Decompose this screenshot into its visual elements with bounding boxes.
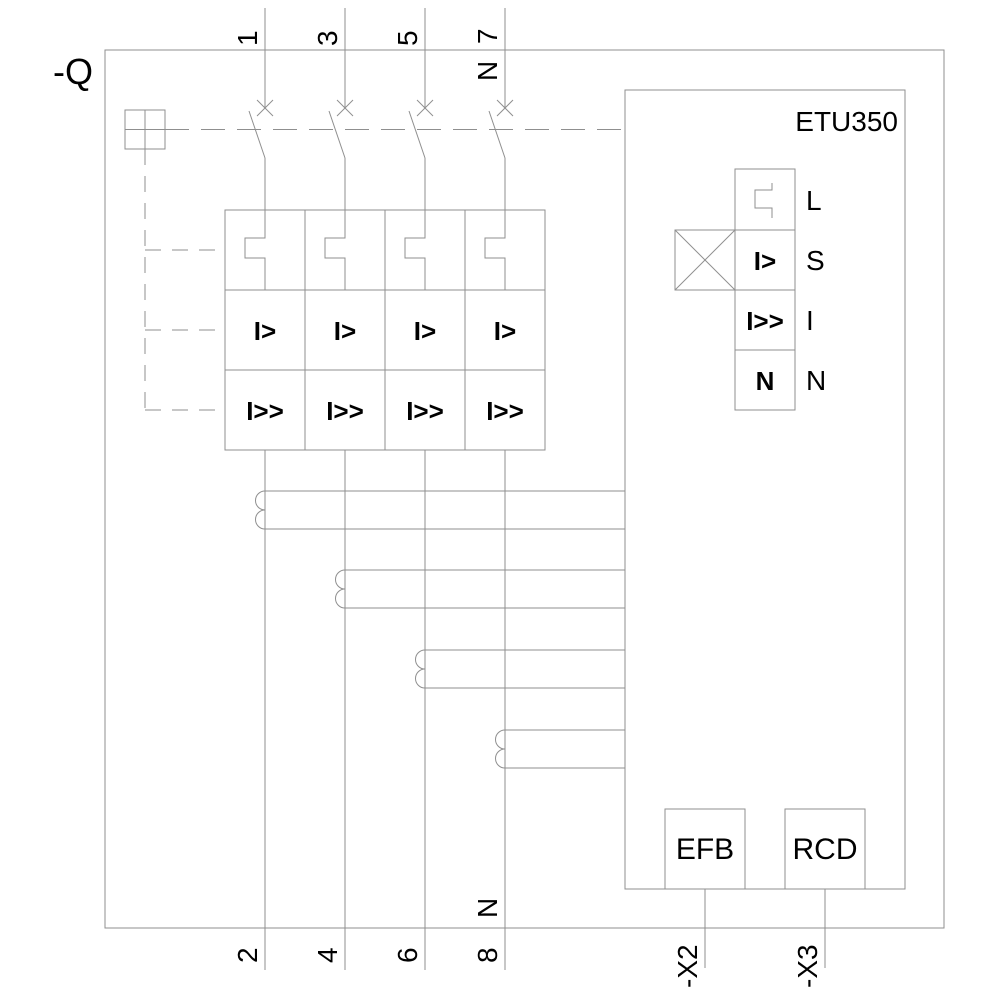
pole-2-contact-blade [329,111,345,158]
inverse-time-latch-icon [755,183,772,218]
pole-4-current-transformer [496,730,626,768]
etu-function-symbol-S: I> [754,246,776,276]
neutral-label-bottom: N [472,898,503,918]
terminal-label-bottom-2: 2 [232,947,263,963]
efb-label: EFB [676,833,734,866]
etu-function-symbol-I: I>> [746,306,784,336]
pole-4-overload-release-label: I> [494,316,516,346]
pole-4-contact-blade [489,111,505,158]
rcd-label: RCD [793,833,858,866]
device-outline [105,50,944,928]
terminal-label-bottom-6: 6 [392,947,423,963]
pole-4-trip-latch-symbol [485,210,505,290]
pole-2 [325,8,625,970]
etu-function-stack [675,169,795,410]
pole-2-trip-latch-symbol [325,210,345,290]
pole-3-current-transformer [416,650,626,688]
etu-function-box-L [735,169,795,230]
terminal-label-top-1: 1 [232,30,263,46]
pole-3-short-circuit-release-label: I>> [406,396,444,426]
terminal-label-bottom-4: 4 [312,947,343,963]
terminal-label-bottom-8: 8 [472,947,503,963]
pole-2-short-circuit-release-label: I>> [326,396,364,426]
pole-1-contact-blade [249,111,265,158]
etu-title: ETU350 [795,106,898,137]
terminal-label-top-5: 5 [392,30,423,46]
pole-1-current-transformer [256,491,626,529]
connector-label-x2: -X2 [672,944,703,988]
terminal-label-top-3: 3 [312,30,343,46]
pole-1-trip-latch-symbol [245,210,265,290]
device-label: -Q [53,51,93,92]
etu-function-symbol-N: N [756,366,775,396]
pole-3-contact-blade [409,111,425,158]
connector-label-x3: -X3 [792,944,823,988]
pole-4-neutral [485,8,625,970]
pole-4-short-circuit-release-label: I>> [486,396,524,426]
pole-2-overload-release-label: I> [334,316,356,346]
etu-box [625,90,905,889]
etu-function-label-S: S [806,245,825,276]
operating-mechanism-symbol [125,110,165,149]
etu-function-label-L: L [806,185,822,216]
pole-1-short-circuit-release-label: I>> [246,396,284,426]
neutral-label-top: N [472,61,503,81]
pole-3 [405,8,625,970]
etu-function-label-I: I [806,305,814,336]
pole-2-current-transformer [336,570,626,608]
display-crossed-box-icon [675,230,735,290]
pole-1 [245,8,625,970]
pole-3-trip-latch-symbol [405,210,425,290]
schematic-canvas: -Q [0,0,1000,1000]
pole-1-overload-release-label: I> [254,316,276,346]
terminal-label-top-7: 7 [472,28,503,44]
pole-3-overload-release-label: I> [414,316,436,346]
etu-function-label-N: N [806,365,826,396]
circuit-breaker-schematic: -Q [0,0,1000,1000]
